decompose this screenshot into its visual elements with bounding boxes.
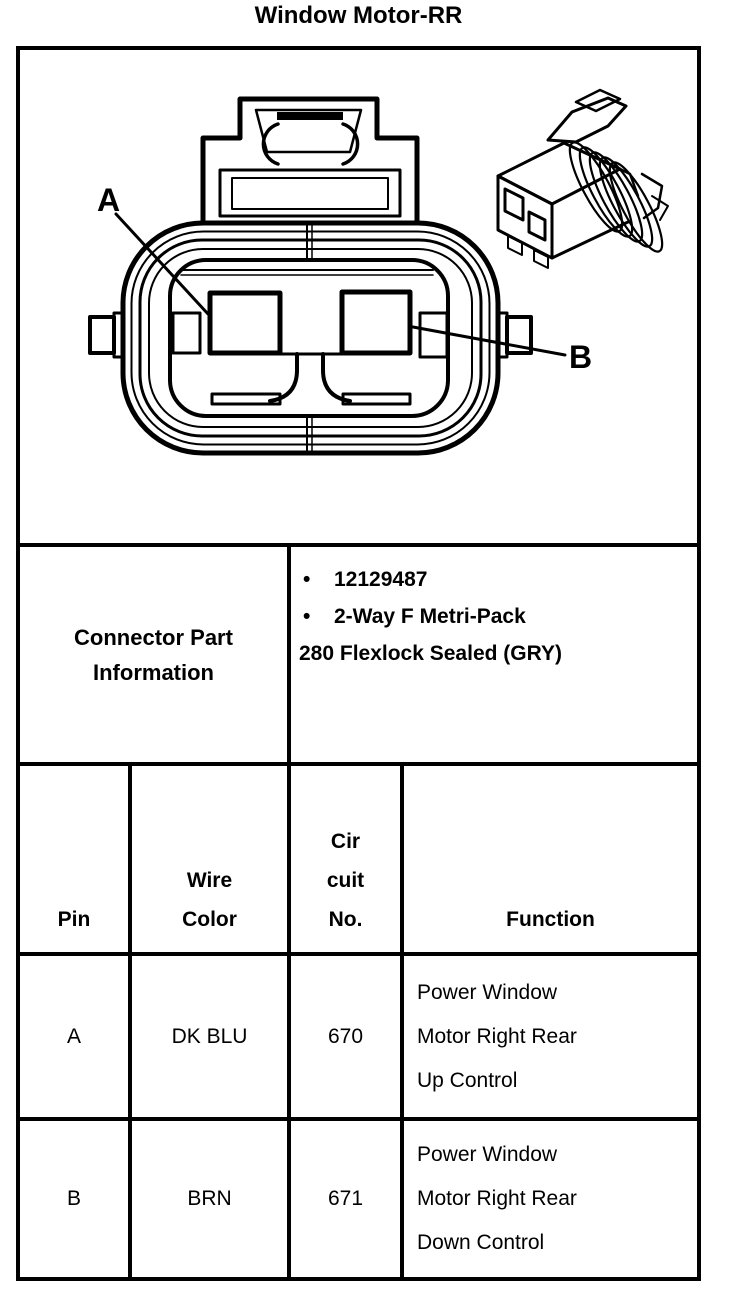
pin-b-callout: B — [569, 339, 592, 375]
cavity-b — [342, 292, 410, 353]
part-number-item: • 12129487 — [291, 561, 697, 598]
lock-slot — [277, 112, 343, 120]
pin-a-callout: A — [97, 182, 120, 218]
connector-diagram: A B — [20, 50, 697, 543]
row-a-pin: A — [20, 952, 132, 1117]
row-b-pin: B — [20, 1117, 132, 1277]
connector-part-info-label-line2: Information — [93, 655, 214, 690]
page-title: Window Motor-RR — [16, 2, 701, 30]
connector-isometric-view — [498, 90, 671, 268]
header-function: Function — [404, 766, 697, 952]
connector-figure: A B Connector Part Information • 1212948… — [16, 46, 701, 1281]
bullet-icon: • — [300, 598, 334, 635]
part-number: 12129487 — [334, 561, 427, 598]
row-b-circuit-no: 671 — [291, 1117, 404, 1277]
bullet-icon: • — [300, 561, 334, 598]
connector-type-continuation: 280 Flexlock Sealed (GRY) — [291, 635, 697, 672]
connector-type-item: • 2-Way F Metri-Pack — [291, 598, 697, 635]
connector-part-info-label: Connector Part Information — [20, 547, 291, 762]
header-circuit-no: Cir cuit No. — [291, 766, 404, 952]
pin-table: Pin Wire Color Cir cuit No. Function A D… — [20, 762, 697, 1277]
header-wire-color: Wire Color — [132, 766, 291, 952]
row-a-wire-color: DK BLU — [132, 952, 291, 1117]
connector-part-info-section: Connector Part Information • 12129487 • … — [20, 543, 697, 762]
connector-part-info-details: • 12129487 • 2-Way F Metri-Pack 280 Flex… — [291, 547, 697, 762]
connector-type: 2-Way F Metri-Pack — [334, 598, 526, 635]
row-a-function: Power Window Motor Right Rear Up Control — [404, 952, 697, 1117]
connector-part-info-label-line1: Connector Part — [74, 620, 233, 655]
row-a-circuit-no: 670 — [291, 952, 404, 1117]
row-b-function: Power Window Motor Right Rear Down Contr… — [404, 1117, 697, 1277]
cavity-a — [210, 293, 280, 353]
connector-drawing-section: A B — [20, 50, 697, 543]
connector-front-view — [90, 99, 531, 453]
row-b-wire-color: BRN — [132, 1117, 291, 1277]
header-pin: Pin — [20, 766, 132, 952]
